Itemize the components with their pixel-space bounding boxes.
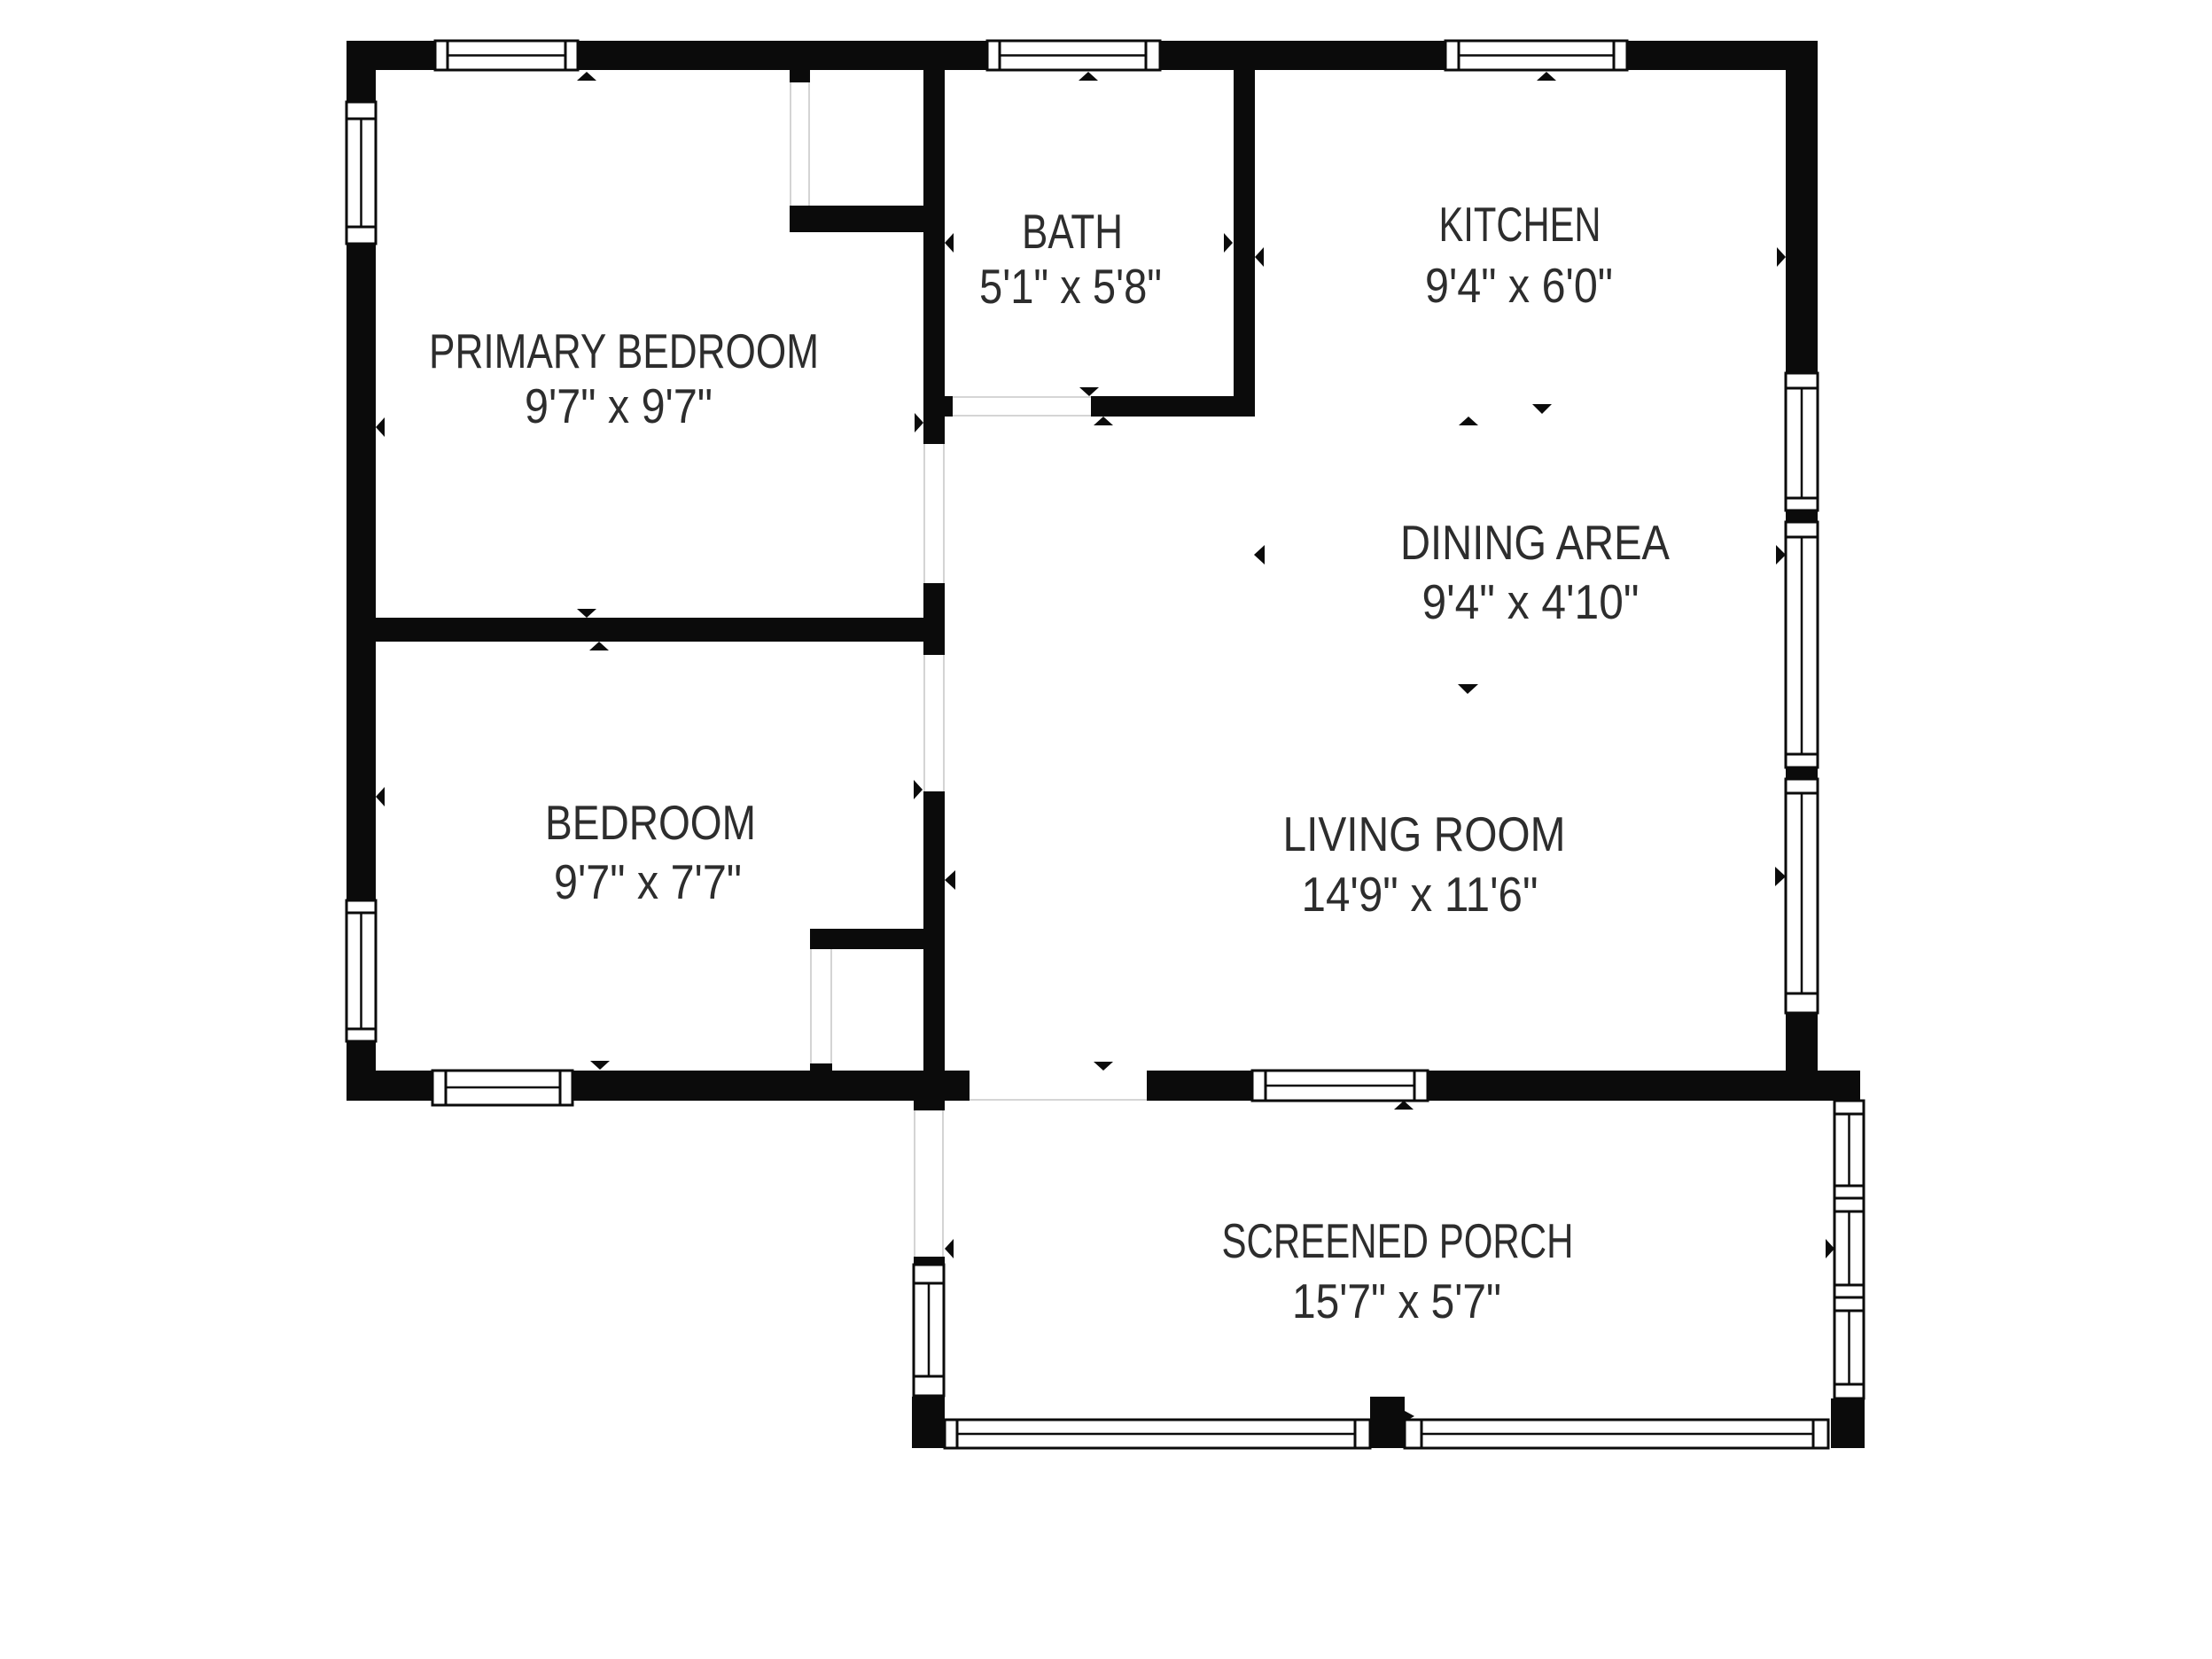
svg-text:9'7" x 7'7": 9'7" x 7'7" [554, 854, 742, 909]
svg-text:DINING AREA: DINING AREA [1400, 515, 1670, 570]
svg-text:9'4" x 4'10": 9'4" x 4'10" [1422, 574, 1640, 629]
svg-text:BATH: BATH [1022, 204, 1123, 259]
svg-text:9'7" x 9'7": 9'7" x 9'7" [525, 378, 713, 433]
svg-text:KITCHEN: KITCHEN [1439, 197, 1601, 252]
svg-text:PRIMARY BEDROOM: PRIMARY BEDROOM [429, 323, 819, 378]
svg-text:BEDROOM: BEDROOM [545, 795, 756, 850]
svg-text:SCREENED PORCH: SCREENED PORCH [1222, 1213, 1574, 1268]
svg-text:5'1" x 5'8": 5'1" x 5'8" [979, 259, 1162, 314]
svg-text:15'7" x 5'7": 15'7" x 5'7" [1292, 1273, 1501, 1328]
svg-text:9'4" x 6'0": 9'4" x 6'0" [1425, 258, 1613, 313]
svg-text:14'9" x 11'6": 14'9" x 11'6" [1302, 867, 1538, 922]
svg-text:LIVING ROOM: LIVING ROOM [1283, 806, 1566, 861]
